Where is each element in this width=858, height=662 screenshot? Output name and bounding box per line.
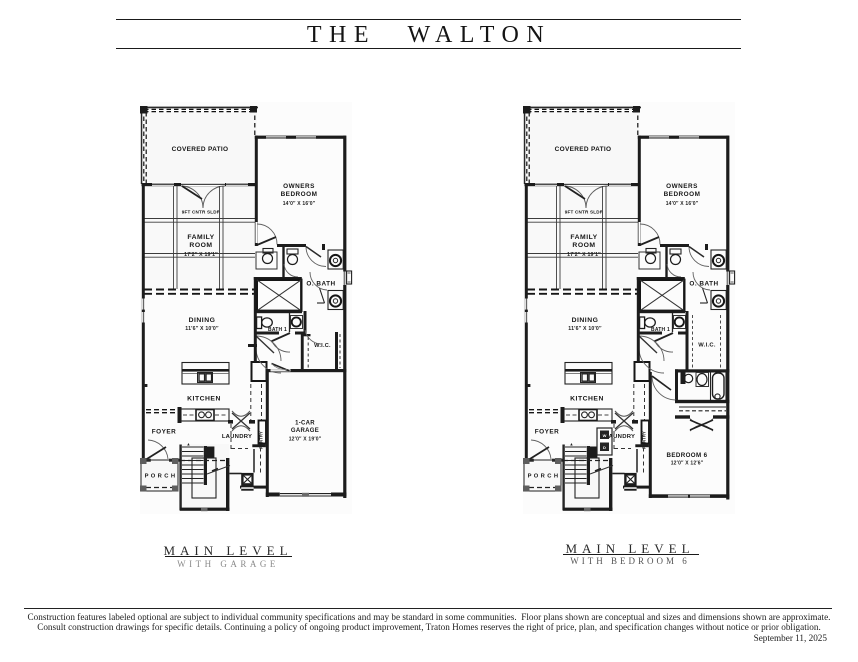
svg-text:BATH 1: BATH 1 [651, 327, 670, 333]
svg-text:D: D [603, 445, 606, 450]
svg-text:BEDROOM: BEDROOM [281, 191, 318, 198]
svg-text:GARAGE: GARAGE [291, 428, 319, 434]
svg-text:OWNERS: OWNERS [283, 183, 315, 190]
svg-text:COVERED PATIO: COVERED PATIO [172, 146, 229, 153]
svg-text:OWNERS: OWNERS [666, 183, 698, 190]
svg-text:LAUNDRY: LAUNDRY [605, 434, 635, 440]
svg-text:BEDROOM 6: BEDROOM 6 [666, 452, 707, 459]
svg-text:KITCHEN: KITCHEN [187, 396, 221, 403]
svg-text:O. BATH: O. BATH [689, 281, 718, 288]
svg-text:1-CAR: 1-CAR [295, 421, 315, 427]
svg-text:W: W [603, 433, 607, 438]
svg-text:ROOM: ROOM [572, 242, 595, 249]
svg-text:11′6″ X 10′0″: 11′6″ X 10′0″ [568, 326, 602, 332]
svg-text:▲: ▲ [186, 442, 190, 447]
svg-text:12′0″ X 12′6″: 12′0″ X 12′6″ [671, 461, 704, 467]
svg-text:17′2″ X 19′1″: 17′2″ X 19′1″ [567, 252, 601, 258]
svg-text:▲: ▲ [569, 442, 573, 447]
svg-text:COVERED PATIO: COVERED PATIO [555, 146, 612, 153]
svg-text:O. BATH: O. BATH [306, 281, 335, 288]
svg-text:W.I.C.: W.I.C. [314, 343, 331, 349]
svg-text:W.I.C.: W.I.C. [698, 343, 716, 349]
svg-text:11′6″ X 10′0″: 11′6″ X 10′0″ [185, 326, 219, 332]
svg-text:P O R C H: P O R C H [528, 474, 559, 480]
svg-text:BATH 1: BATH 1 [268, 327, 287, 333]
svg-text:BEDROOM: BEDROOM [664, 191, 701, 198]
svg-text:DINING: DINING [572, 317, 599, 324]
svg-text:FOYER: FOYER [152, 429, 177, 436]
svg-text:LAUNDRY: LAUNDRY [222, 434, 252, 440]
svg-text:P O R C H: P O R C H [145, 474, 176, 480]
svg-text:KITCHEN: KITCHEN [570, 396, 604, 403]
svg-text:14′0″ X 16′0″: 14′0″ X 16′0″ [666, 201, 699, 207]
svg-text:14′0″ X 16′0″: 14′0″ X 16′0″ [283, 201, 316, 207]
svg-text:FOYER: FOYER [535, 429, 560, 436]
svg-text:DINING: DINING [189, 317, 216, 324]
svg-text:17′2″ X 19′1″: 17′2″ X 19′1″ [184, 252, 218, 258]
svg-text:FAMILY: FAMILY [187, 234, 214, 241]
svg-text:FAMILY: FAMILY [570, 234, 597, 241]
svg-text:12′0″ X 19′0″: 12′0″ X 19′0″ [289, 437, 322, 443]
svg-text:ROOM: ROOM [189, 242, 212, 249]
